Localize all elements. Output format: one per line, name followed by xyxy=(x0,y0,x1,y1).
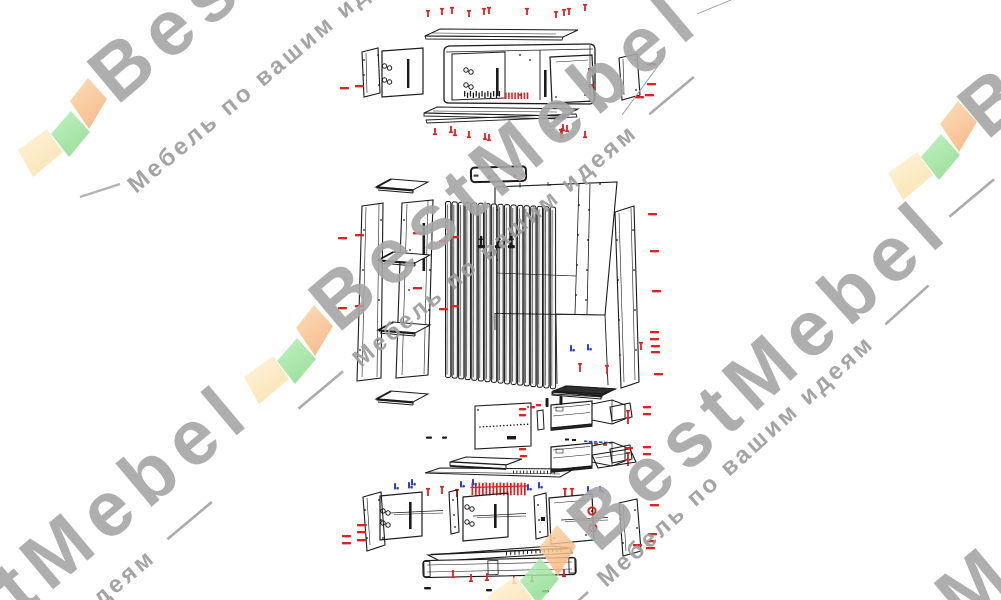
svg-text:BestMebel: BestMebel xyxy=(758,399,1001,600)
svg-text:BestMebel: BestMebel xyxy=(550,180,966,567)
